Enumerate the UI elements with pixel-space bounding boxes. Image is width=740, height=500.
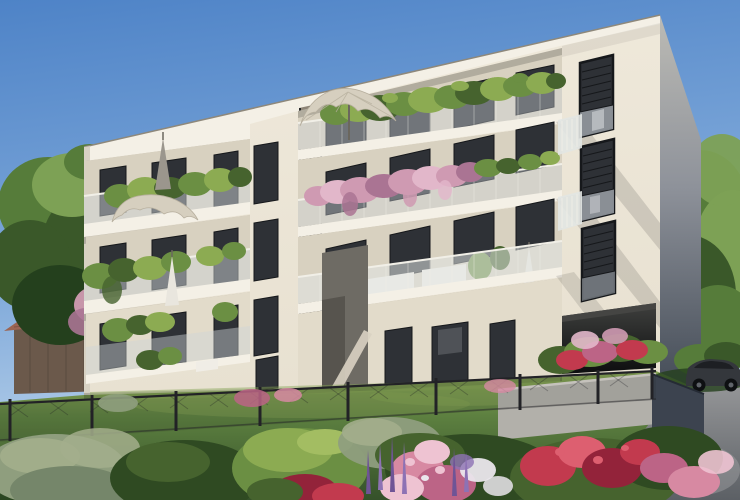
flower-cluster-pink xyxy=(234,389,270,407)
flower-cluster-pink xyxy=(414,440,450,464)
flower-dot xyxy=(593,456,603,464)
wheel-hub xyxy=(729,383,734,388)
door-reflection xyxy=(438,327,462,355)
flower-cluster-pink xyxy=(698,450,734,474)
window xyxy=(254,219,278,281)
flower-cluster-pink xyxy=(274,388,302,402)
flower-dot xyxy=(555,448,565,456)
shrub xyxy=(98,394,138,412)
window xyxy=(254,142,278,204)
left-wing xyxy=(82,132,278,390)
scene-rendering xyxy=(0,0,740,500)
shrub xyxy=(126,442,210,482)
window xyxy=(254,296,278,356)
curtain xyxy=(590,195,600,214)
wheel-hub xyxy=(697,383,702,388)
flower-cluster-pink xyxy=(484,379,516,393)
flower-cluster-white xyxy=(483,476,513,496)
rendering-viewport xyxy=(0,0,740,500)
flower-dot xyxy=(621,445,629,451)
flower-dot xyxy=(435,466,445,474)
flower-dot xyxy=(421,475,429,481)
window xyxy=(490,320,515,381)
window xyxy=(385,327,412,386)
central-section xyxy=(298,48,566,394)
curtain xyxy=(592,109,604,131)
flower-dot xyxy=(405,458,415,466)
ground-floor-door xyxy=(256,356,278,390)
